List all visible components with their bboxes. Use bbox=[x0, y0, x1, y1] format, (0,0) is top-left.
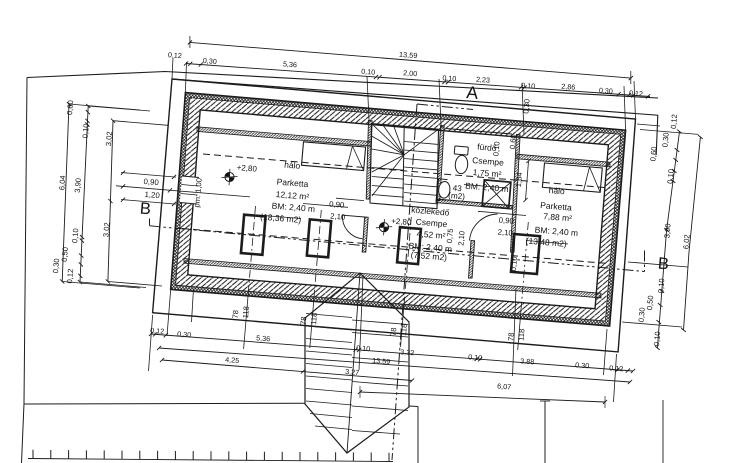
svg-text:0,10: 0,10 bbox=[509, 256, 519, 271]
svg-text:0,75: 0,75 bbox=[445, 228, 455, 243]
svg-text:0,30: 0,30 bbox=[177, 329, 192, 339]
svg-text:3,32: 3,32 bbox=[400, 347, 415, 357]
svg-text:0,30: 0,30 bbox=[575, 360, 590, 370]
svg-text:+2,80: +2,80 bbox=[236, 163, 257, 174]
svg-text:0,30: 0,30 bbox=[599, 86, 614, 96]
svg-text:6,07: 6,07 bbox=[497, 381, 512, 391]
svg-text:0,12: 0,12 bbox=[629, 88, 644, 98]
svg-text:0,60: 0,60 bbox=[648, 146, 658, 161]
svg-text:4,25: 4,25 bbox=[225, 355, 240, 365]
svg-text:0,10: 0,10 bbox=[521, 81, 536, 91]
svg-text:0,30: 0,30 bbox=[637, 307, 647, 322]
svg-text:0,50: 0,50 bbox=[60, 247, 70, 262]
svg-text:0,10: 0,10 bbox=[652, 331, 662, 346]
svg-text:0,30: 0,30 bbox=[202, 56, 217, 66]
svg-text:78: 78 bbox=[389, 327, 399, 336]
svg-text:0,10: 0,10 bbox=[666, 169, 676, 184]
svg-text:1,20: 1,20 bbox=[144, 190, 161, 200]
svg-text:2,10: 2,10 bbox=[330, 212, 347, 222]
svg-text:+2,80: +2,80 bbox=[391, 217, 412, 228]
svg-text:118: 118 bbox=[309, 312, 319, 325]
svg-text:0,12: 0,12 bbox=[168, 50, 183, 60]
svg-text:3,27: 3,27 bbox=[345, 367, 360, 377]
svg-text:2,10: 2,10 bbox=[456, 231, 466, 246]
svg-text:118: 118 bbox=[241, 306, 251, 319]
svg-text:0,10: 0,10 bbox=[491, 141, 501, 156]
svg-text:3,90: 3,90 bbox=[662, 223, 672, 238]
svg-text:2,00: 2,00 bbox=[403, 68, 418, 78]
svg-text:1,64: 1,64 bbox=[514, 172, 524, 187]
svg-text:hálo: hálo bbox=[548, 185, 565, 196]
svg-text:A: A bbox=[466, 82, 480, 103]
svg-text:0,90: 0,90 bbox=[143, 177, 160, 187]
svg-text:0,90: 0,90 bbox=[498, 216, 515, 226]
svg-text:2,86: 2,86 bbox=[561, 82, 576, 92]
svg-text:0,10: 0,10 bbox=[468, 352, 483, 362]
svg-text:0,10: 0,10 bbox=[356, 343, 371, 353]
svg-text:5,36: 5,36 bbox=[256, 333, 271, 343]
svg-text:3,02: 3,02 bbox=[104, 131, 114, 146]
svg-text:118: 118 bbox=[517, 328, 527, 341]
svg-text:0,30: 0,30 bbox=[51, 258, 61, 273]
svg-text:0,10: 0,10 bbox=[656, 278, 666, 293]
svg-text:118: 118 bbox=[399, 323, 409, 336]
svg-text:hálo: hálo bbox=[284, 160, 301, 171]
svg-text:0,90: 0,90 bbox=[329, 200, 346, 210]
svg-text:3,88: 3,88 bbox=[520, 356, 535, 366]
svg-text:0,10: 0,10 bbox=[70, 228, 80, 243]
svg-text:78: 78 bbox=[231, 310, 241, 319]
svg-text:0,10: 0,10 bbox=[81, 123, 91, 138]
svg-text:B: B bbox=[139, 200, 151, 219]
svg-text:0,60: 0,60 bbox=[508, 134, 518, 149]
svg-text:3,02: 3,02 bbox=[101, 222, 111, 237]
svg-text:13,59: 13,59 bbox=[399, 50, 418, 60]
svg-text:2,23: 2,23 bbox=[476, 75, 491, 85]
svg-text:0,10: 0,10 bbox=[361, 67, 376, 77]
svg-text:2,10: 2,10 bbox=[497, 228, 514, 238]
svg-text:0,12: 0,12 bbox=[669, 114, 679, 129]
svg-text:3,90: 3,90 bbox=[73, 178, 83, 193]
svg-text:78: 78 bbox=[299, 316, 309, 325]
svg-text:6,02: 6,02 bbox=[681, 234, 691, 249]
svg-text:6,04: 6,04 bbox=[57, 175, 67, 190]
svg-text:0,30: 0,30 bbox=[661, 132, 671, 147]
svg-text:0,10: 0,10 bbox=[442, 73, 457, 83]
svg-text:0,12: 0,12 bbox=[65, 268, 75, 283]
svg-text:0,12: 0,12 bbox=[150, 326, 165, 336]
svg-text:5,36: 5,36 bbox=[283, 59, 298, 69]
svg-text:0,12: 0,12 bbox=[609, 363, 624, 373]
svg-text:(m2): (m2) bbox=[448, 191, 466, 201]
svg-text:13,59: 13,59 bbox=[372, 356, 391, 366]
svg-text:0,60: 0,60 bbox=[65, 100, 75, 115]
